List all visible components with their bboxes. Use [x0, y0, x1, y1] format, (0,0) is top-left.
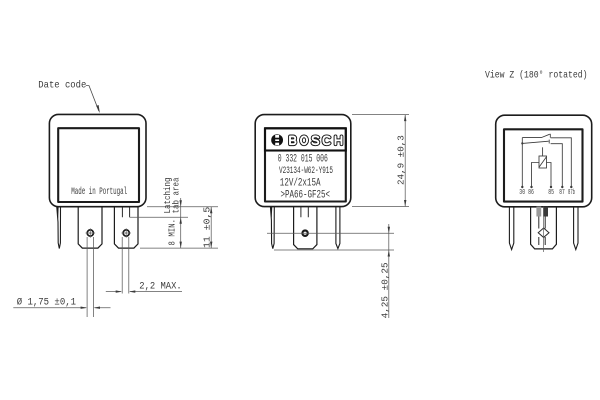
svg-text:Made in Portugal: Made in Portugal	[71, 186, 127, 197]
svg-text:24,9 ±0,3: 24,9 ±0,3	[395, 135, 406, 185]
svg-text:12V/2x15A: 12V/2x15A	[280, 178, 321, 190]
svg-text:87: 87	[559, 189, 565, 197]
svg-text:>PA66-GF25<: >PA66-GF25<	[281, 189, 331, 201]
svg-text:87b: 87b	[568, 189, 575, 197]
svg-text:11 ±0,5: 11 ±0,5	[202, 206, 213, 248]
svg-text:30: 30	[519, 189, 525, 197]
svg-text:Ø 1,75 ±0,1: Ø 1,75 ±0,1	[17, 297, 76, 309]
svg-text:View Z (180° rotated): View Z (180° rotated)	[485, 69, 588, 81]
svg-text:8 MIN.: 8 MIN.	[167, 219, 178, 246]
svg-text:86: 86	[528, 189, 534, 197]
svg-text:Date code: Date code	[38, 80, 86, 92]
svg-text:2,2 MAX.: 2,2 MAX.	[139, 282, 181, 293]
svg-text:4,25 ±0,25: 4,25 ±0,25	[380, 262, 391, 318]
svg-text:0 332 015 006: 0 332 015 006	[278, 153, 328, 165]
svg-text:V23134-W62-Y915: V23134-W62-Y915	[279, 165, 333, 177]
svg-text:tab area: tab area	[171, 177, 182, 213]
svg-text:85: 85	[548, 189, 554, 197]
